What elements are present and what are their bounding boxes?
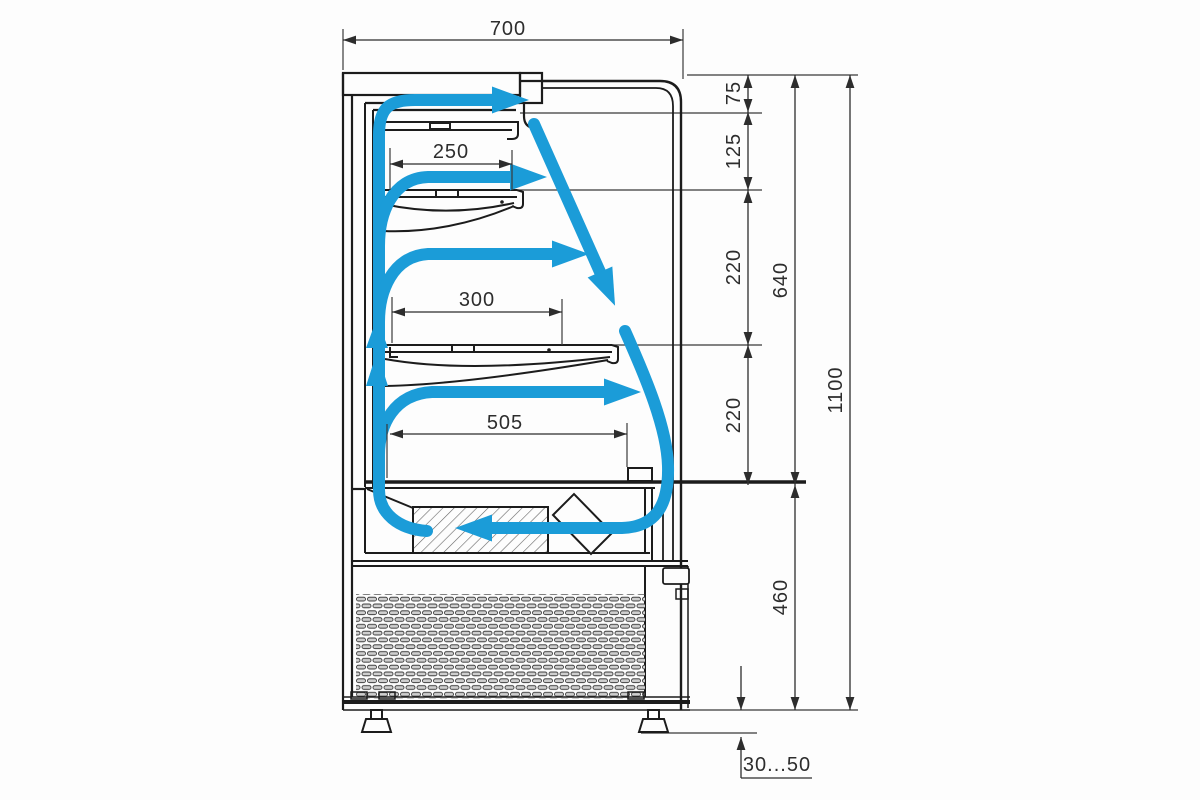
detail-dots — [398, 101, 551, 352]
dim-label-300: 300 — [459, 289, 495, 311]
deck-front-retainer — [628, 468, 652, 481]
foot-right-stem — [648, 710, 659, 719]
drawing-canvas: 700 250 300 505 75 125 220 — [0, 0, 1200, 800]
display-case-diagram: 700 250 300 505 75 125 220 — [0, 0, 1200, 800]
dim-foot-height: 30...50 — [741, 666, 812, 778]
deck — [365, 468, 806, 488]
dim-label-1100: 1100 — [825, 366, 847, 413]
shelf-top — [385, 122, 518, 139]
machine-compartment — [352, 561, 688, 699]
dim-top-width: 700 — [343, 18, 683, 79]
dim-label-125: 125 — [723, 133, 745, 169]
dim-label-220b: 220 — [723, 397, 745, 433]
adjustable-foot-left — [362, 719, 391, 732]
shelf-mid-bracket-top — [383, 203, 514, 211]
switch-box — [663, 568, 689, 584]
dim-1100: 1100 — [825, 75, 850, 710]
dim-label-250: 250 — [433, 141, 469, 163]
dim-label-640: 640 — [770, 262, 792, 298]
shelf-middle — [383, 190, 523, 231]
dim-deck-505: 505 — [387, 412, 627, 478]
front-top-box — [520, 73, 542, 103]
shelf-mid-slot — [436, 190, 458, 197]
dim-label-700: 700 — [490, 18, 526, 40]
dot — [547, 348, 551, 352]
dim-label-75: 75 — [723, 81, 745, 105]
shelf-low-slot — [452, 345, 474, 352]
shelf-low-lip — [607, 345, 618, 363]
dim-shelf-300: 300 — [392, 289, 562, 345]
canopy-body — [343, 73, 520, 95]
dim-label-505: 505 — [487, 412, 523, 434]
dim-chain-right: 75 125 220 220 — [723, 75, 748, 485]
dim-640: 640 — [770, 75, 795, 485]
dim-label-220a: 220 — [723, 249, 745, 285]
back-duct-panel — [365, 103, 373, 487]
dot — [500, 200, 504, 204]
dim-label-30-50: 30...50 — [743, 754, 811, 776]
louver-grille — [356, 594, 645, 699]
feet — [362, 710, 668, 732]
shelf-lower — [385, 345, 618, 386]
dim-460: 460 — [770, 485, 795, 710]
dim-label-460: 460 — [770, 579, 792, 615]
foot-left-stem — [371, 710, 382, 719]
shelf-top-slot — [430, 123, 450, 129]
adjustable-foot-right — [639, 719, 668, 732]
